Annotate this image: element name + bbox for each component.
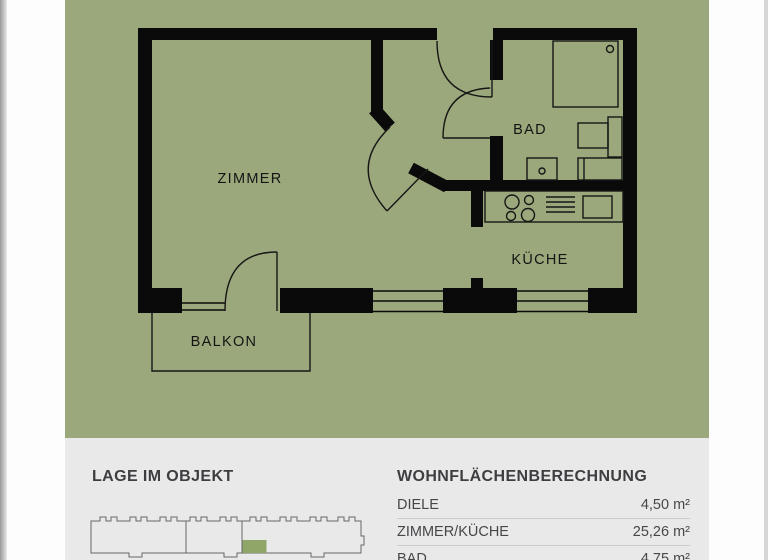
wall-left	[138, 28, 152, 313]
wall-bottom-corner	[588, 288, 637, 313]
location-title: LAGE IM OBJEKT	[92, 468, 234, 486]
page-edge-left	[0, 0, 7, 560]
building-outline-svg	[88, 514, 368, 560]
wall-hall	[371, 40, 383, 112]
wall-top-left	[138, 28, 437, 40]
building-outline	[91, 517, 364, 557]
row-value: 4,50 m²	[641, 497, 690, 513]
wall-bath-kitchen	[443, 180, 623, 191]
info-section: LAGE IM OBJEKT WOHNFLÄCHENBERECHNUNG DIE…	[65, 438, 709, 560]
table-row: ZIMMER/KÜCHE 25,26 m²	[397, 519, 690, 546]
floor-plan-svg: ZIMMER BAD KÜCHE BALKON	[65, 0, 709, 438]
wall-right	[623, 28, 637, 313]
wall-bath-lower	[490, 136, 503, 181]
wall-bottom-pier-2	[280, 288, 373, 313]
location-block: LAGE IM OBJEKT	[92, 468, 234, 486]
wall-kitchen-notch	[471, 278, 483, 288]
wall-kitchen-stub	[471, 191, 483, 227]
room-label-zimmer: ZIMMER	[218, 171, 283, 187]
page: { "plan": { "labels": { "zimmer": "ZIMME…	[0, 0, 768, 560]
row-label: DIELE	[397, 497, 439, 513]
room-label-bad: BAD	[513, 122, 547, 138]
row-value: 4,75 m²	[641, 551, 690, 560]
area-table: WOHNFLÄCHENBERECHNUNG DIELE 4,50 m² ZIMM…	[397, 468, 690, 560]
wall-bottom-pier-3	[443, 288, 517, 313]
apartment-highlight	[243, 540, 267, 553]
room-label-balkon: BALKON	[191, 334, 258, 350]
row-label: BAD	[397, 551, 427, 560]
plan-background	[65, 0, 709, 438]
room-label-kueche: KÜCHE	[511, 250, 568, 268]
area-table-title: WOHNFLÄCHENBERECHNUNG	[397, 468, 690, 486]
area-rows: DIELE 4,50 m² ZIMMER/KÜCHE 25,26 m² BAD …	[397, 492, 690, 560]
wall-bottom-pier-1	[138, 288, 182, 313]
page-edge-right	[764, 0, 768, 560]
row-label: ZIMMER/KÜCHE	[397, 524, 509, 540]
table-row: BAD 4,75 m²	[397, 546, 690, 560]
floor-plan-panel: ZIMMER BAD KÜCHE BALKON	[65, 0, 709, 438]
row-value: 25,26 m²	[633, 524, 690, 540]
table-row: DIELE 4,50 m²	[397, 492, 690, 519]
wall-top-right	[493, 28, 637, 40]
